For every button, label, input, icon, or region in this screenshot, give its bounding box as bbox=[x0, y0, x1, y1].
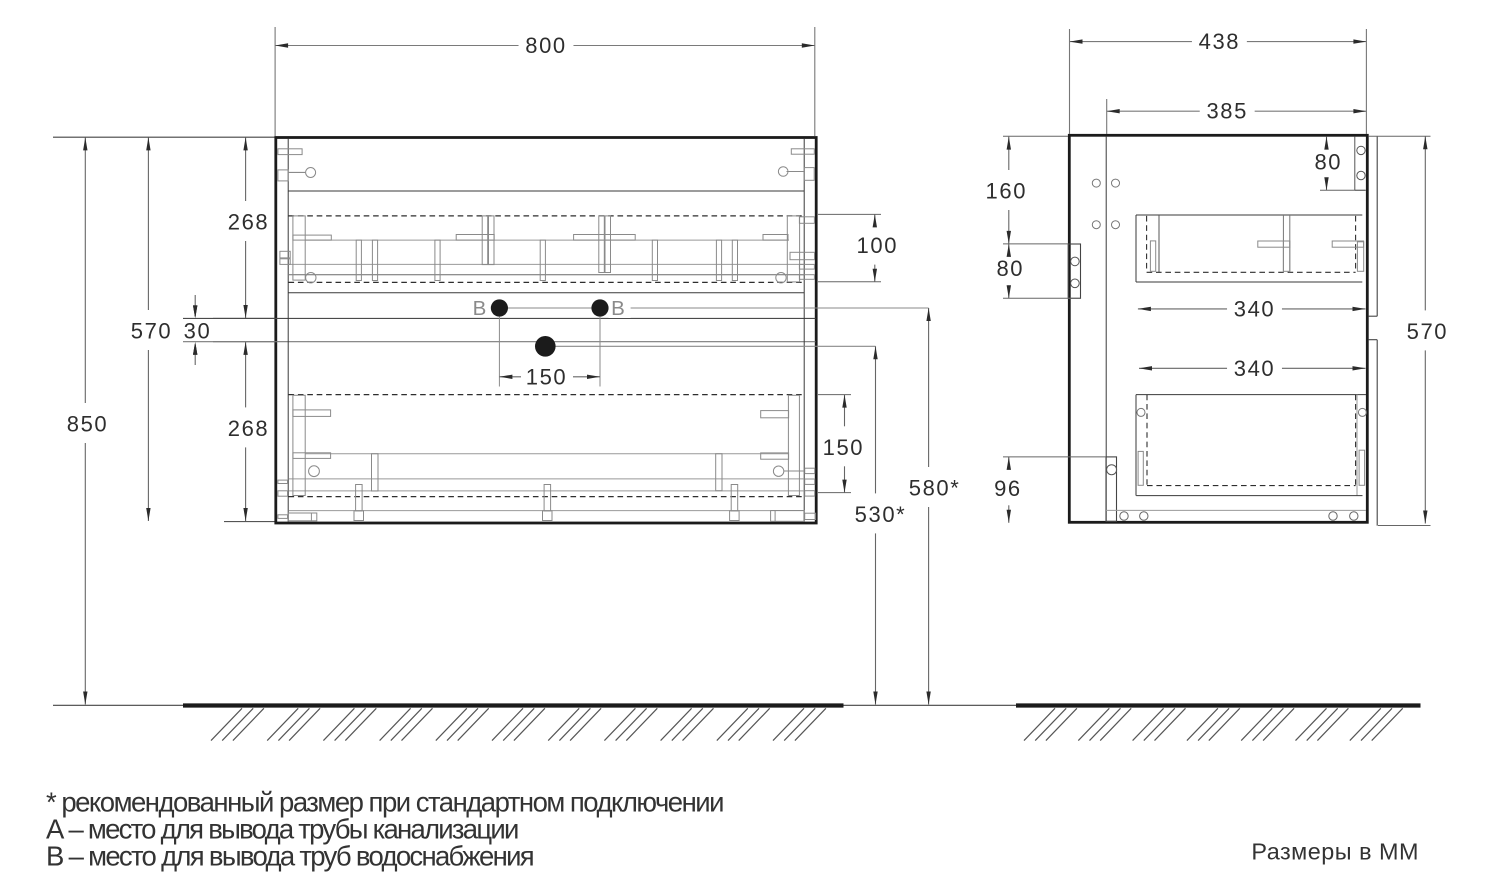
svg-text:160: 160 bbox=[986, 179, 1028, 204]
svg-text:800: 800 bbox=[525, 33, 567, 58]
svg-text:В – место для вывода труб водо: В – место для вывода труб водоснабжения bbox=[46, 840, 533, 871]
svg-text:150: 150 bbox=[526, 364, 568, 389]
svg-text:Размеры в ММ: Размеры в ММ bbox=[1251, 839, 1419, 865]
svg-text:100: 100 bbox=[857, 233, 899, 258]
svg-text:850: 850 bbox=[67, 412, 109, 437]
svg-text:B: B bbox=[473, 297, 487, 320]
svg-text:268: 268 bbox=[228, 416, 270, 441]
svg-text:268: 268 bbox=[228, 210, 270, 235]
svg-text:96: 96 bbox=[994, 476, 1022, 501]
svg-text:580*: 580* bbox=[909, 476, 961, 501]
svg-text:530*: 530* bbox=[855, 502, 907, 527]
svg-text:570: 570 bbox=[1407, 319, 1449, 344]
svg-text:340: 340 bbox=[1234, 356, 1276, 381]
svg-text:30: 30 bbox=[184, 319, 212, 344]
svg-text:80: 80 bbox=[996, 256, 1024, 281]
svg-text:80: 80 bbox=[1314, 149, 1342, 174]
svg-text:150: 150 bbox=[823, 435, 865, 460]
svg-text:438: 438 bbox=[1199, 29, 1241, 54]
svg-text:385: 385 bbox=[1206, 99, 1248, 124]
svg-text:340: 340 bbox=[1234, 296, 1276, 321]
svg-text:B: B bbox=[611, 297, 625, 320]
svg-text:570: 570 bbox=[131, 319, 173, 344]
